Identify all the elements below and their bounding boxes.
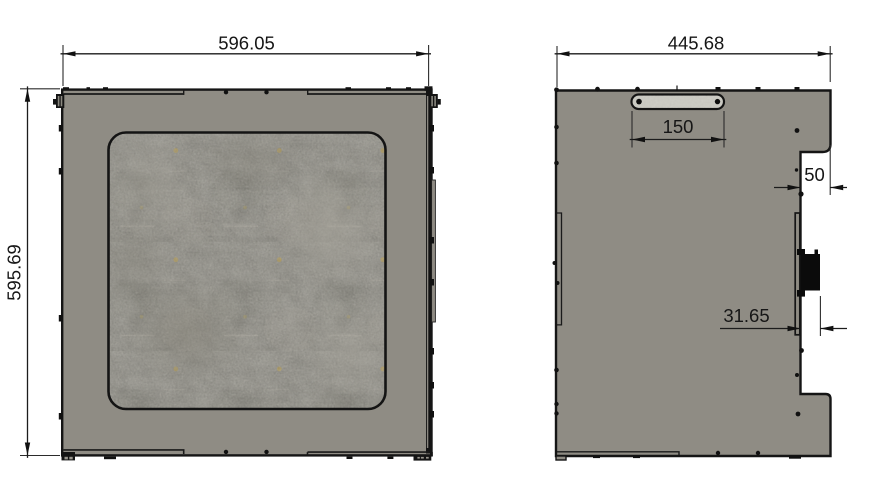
- svg-text:596.05: 596.05: [218, 33, 275, 54]
- svg-text:595.69: 595.69: [4, 244, 25, 301]
- svg-text:445.68: 445.68: [668, 33, 725, 54]
- svg-text:150: 150: [663, 116, 694, 137]
- svg-text:50: 50: [804, 164, 825, 185]
- svg-text:31.65: 31.65: [723, 305, 769, 326]
